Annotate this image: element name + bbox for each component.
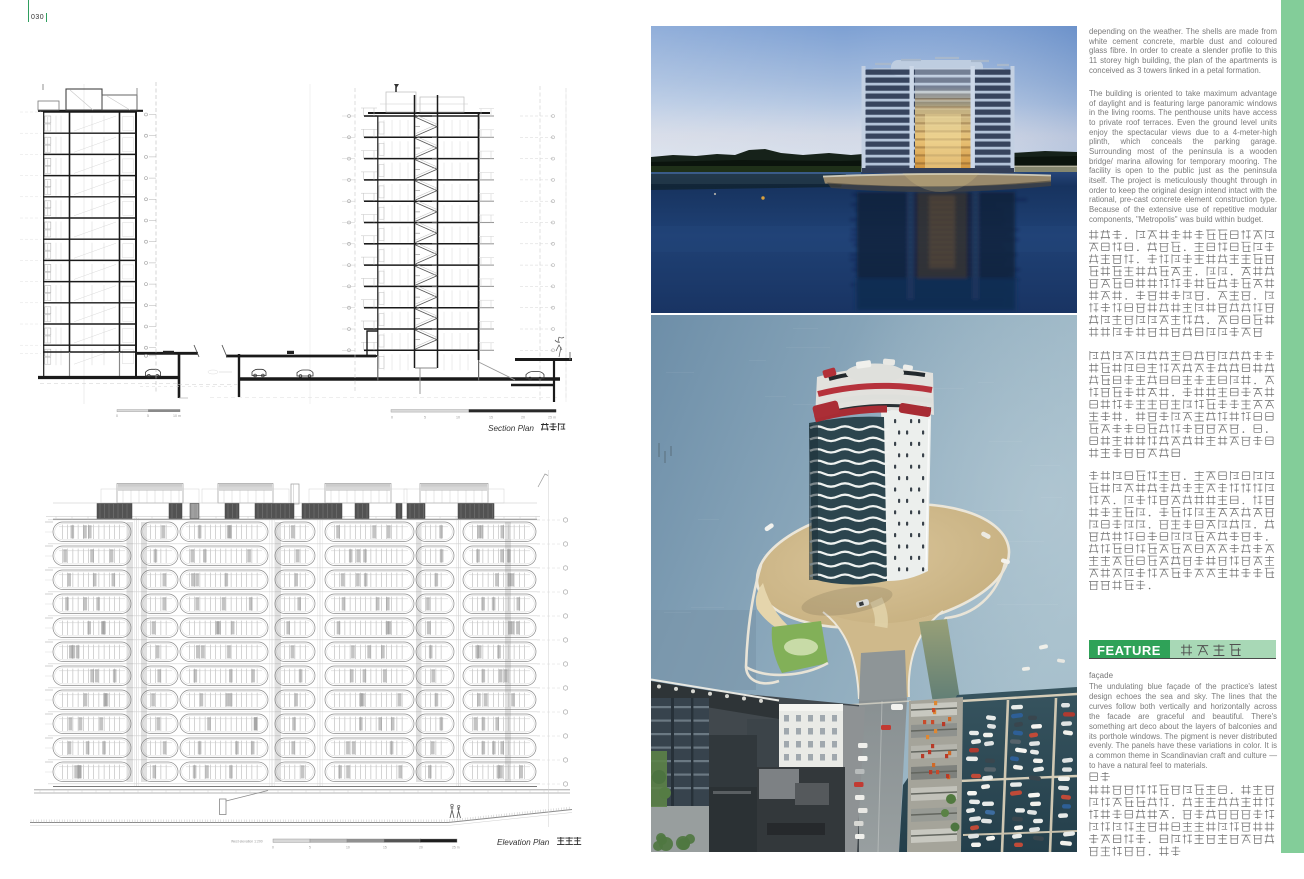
svg-text:15: 15 [489,416,493,420]
svg-text:20: 20 [419,846,423,850]
svg-text:0: 0 [272,846,274,850]
svg-text:10 m: 10 m [173,414,181,418]
svg-text:Section Plan: Section Plan [488,424,534,433]
svg-text:5: 5 [147,414,149,418]
svg-text:0: 0 [391,416,393,420]
svg-text:5: 5 [424,416,426,420]
svg-text:West elevation 1:200: West elevation 1:200 [231,840,263,844]
svg-text:10: 10 [456,416,460,420]
svg-text:15: 15 [383,846,387,850]
svg-text:5: 5 [309,846,311,850]
svg-text:25 m: 25 m [452,846,460,850]
svg-text:20: 20 [521,416,525,420]
svg-text:10: 10 [346,846,350,850]
svg-text:0: 0 [116,414,118,418]
svg-text:Elevation Plan: Elevation Plan [497,838,550,847]
svg-text:25 m: 25 m [548,416,556,420]
